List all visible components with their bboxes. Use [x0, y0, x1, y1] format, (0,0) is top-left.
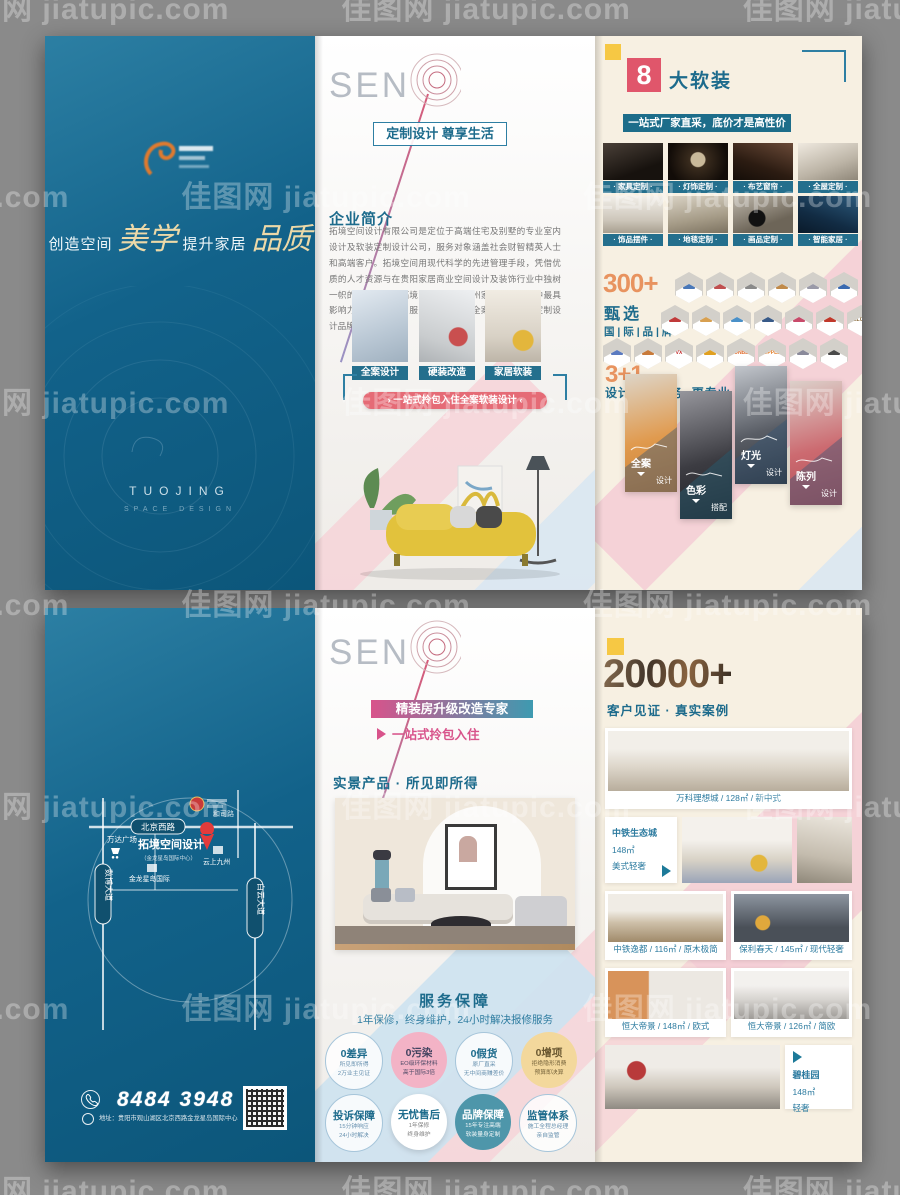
renovation-panel: SEN 精装房升级改造专家 一站式拎包入住 实景产品 · 所见即所得: [315, 608, 595, 1162]
case-caption: 恒大帝景 / 126㎡ / 简欧: [734, 1019, 849, 1034]
cases-count: 20000+: [603, 652, 732, 697]
brand-logo: [830, 272, 858, 303]
case-row: 恒大帝景 / 148㎡ / 欧式 恒大帝景 / 126㎡ / 简欧: [605, 968, 852, 1037]
grid-label: · 全屋定制 ·: [798, 181, 858, 193]
case-text-card: 中铁生态城 148㎡ 美式轻奢: [605, 817, 677, 883]
case-photo: [682, 817, 792, 883]
guarantee-badge: 0差异所见即所得2万业主见证: [325, 1032, 383, 1090]
watermark-text: 佳图网 jiatupic.com 佳图网 jiatupic.com 佳图网 ji…: [0, 1166, 900, 1195]
service-photo: [419, 290, 475, 362]
brand-hex-row: [675, 272, 858, 303]
road-north-label: 北京西路: [141, 822, 176, 832]
brand-en-sub: SPACE DESIGN: [45, 506, 315, 513]
onestop-banner: › 一站式拎包入住全案软装设计 ‹: [363, 392, 547, 409]
designer-role: 色彩: [686, 482, 706, 497]
road-west-label: 数博大道: [104, 869, 114, 901]
service-item: 硬装改造: [419, 290, 475, 380]
brand-logo: [661, 305, 689, 336]
guarantee-badge: 0污染EO级环保材料高于国际3倍: [391, 1032, 447, 1088]
corner-bracket: [802, 50, 846, 82]
intro-panel: SEN 定制设计 尊享生活 企业简介 拓境空间设计有限公司是定位于高端住宅及别墅…: [315, 36, 595, 590]
service-item: 家居软装: [485, 290, 541, 380]
brand-logo: [820, 338, 848, 369]
sen-logo: SEN: [329, 66, 410, 106]
phone-number: 8484 3948: [117, 1088, 234, 1112]
map-pin-label: 拓境空间设计: [138, 837, 204, 851]
play-icon: [377, 728, 386, 740]
case-photo: [734, 971, 849, 1019]
onestop-row: 一站式拎包入住: [377, 724, 480, 743]
sen-rings-icon: [397, 617, 461, 681]
guarantee-badge: 品牌保障15年专注高端软装量身定制: [455, 1094, 511, 1150]
grid-label: · 智能家居 ·: [798, 234, 858, 246]
designer-card: 陈列 设计: [790, 381, 842, 505]
service-photo: [485, 290, 541, 362]
company-logo: [137, 136, 227, 188]
softgoods-panel: 8 大软装 一站式厂家直采，底价才是高性价 · 家具定制 · · 灯饰定制 · …: [595, 36, 862, 590]
service-item: 全案设计: [352, 290, 408, 380]
brand-logo: [768, 272, 796, 303]
case-row: 中铁生态城 148㎡ 美式轻奢: [605, 817, 852, 883]
qr-code: [243, 1086, 287, 1130]
badge-row: 投诉保障15分钟响应24小时解决 无忧售后1年保修终身维护 品牌保障15年专注高…: [325, 1094, 577, 1152]
brochure-back: 北京西路 数博大道 白云大道 和司路 万达广场 拓境空间设计 （金龙星岛国际中心…: [45, 608, 862, 1162]
spiral-decoration: [45, 286, 315, 590]
mall-icon: [111, 848, 120, 859]
yellow-square: [605, 44, 621, 60]
connector-right: [553, 374, 567, 400]
case-row: 中铁逸都 / 116㎡ / 原木极简 保利春天 / 145㎡ / 现代轻奢: [605, 891, 852, 960]
grid-photo: [668, 143, 728, 180]
designer-card: 灯光 设计: [735, 366, 787, 484]
guarantee-badge: 0假货原厂直采无中间商赚差价: [455, 1032, 513, 1090]
brand-logo: [816, 305, 844, 336]
sen-rings-icon: [397, 50, 461, 114]
real-scene-heading: 实景产品 · 所见即所得: [333, 772, 479, 792]
grid-photo: [603, 143, 663, 180]
grid-label: · 灯饰定制 ·: [668, 181, 728, 193]
tagline-part: 提升家居: [183, 233, 247, 254]
brand-name: DONBLE: [728, 350, 754, 356]
case-card: 恒大帝景 / 148㎡ / 欧式: [605, 968, 726, 1037]
stock-preview-canvas: 创造空间 美学 提升家居 品质 TUOJING SPACE DESIGN SEN: [0, 0, 900, 1195]
grid-label: · 地毯定制 ·: [668, 234, 728, 246]
brand-logo: [754, 305, 782, 336]
case-area: 148㎡: [793, 1084, 852, 1100]
brochure-front: 创造空间 美学 提升家居 品质 TUOJING SPACE DESIGN SEN: [45, 36, 862, 590]
designer-role-sub: 设计: [821, 488, 837, 499]
case-row: 碧桂园 148㎡ 轻奢: [605, 1045, 852, 1109]
softgoods-banner: 一站式厂家直采，底价才是高性价: [623, 114, 791, 132]
onestop-text: 一站式拎包入住: [392, 724, 480, 743]
case-photo: [608, 731, 849, 791]
brand-logo: SELORIS: [847, 305, 862, 336]
designer-role-sub: 搭配: [711, 502, 727, 513]
case-photo: [797, 817, 852, 883]
phone-icon: [81, 1090, 100, 1109]
case-caption: 万科理想城 / 128㎡ / 新中式: [608, 791, 849, 806]
designer-role-sub: 设计: [656, 475, 672, 486]
location-map: 北京西路 数博大道 白云大道 和司路 万达广场 拓境空间设计 （金龙星岛国际中心…: [45, 768, 315, 1058]
tagline-part: 创造空间: [48, 233, 112, 254]
designer-card: 色彩 搭配: [680, 391, 732, 519]
case-card: 万科理想城 / 128㎡ / 新中式: [605, 728, 852, 809]
case-photo: [608, 971, 723, 1019]
cases-panel: 20000+ 客户见证 · 真实案例 万科理想城 / 128㎡ / 新中式 中铁…: [595, 608, 862, 1162]
brand-logo: [692, 305, 720, 336]
cover-tagline: 创造空间 美学 提升家居 品质: [45, 226, 315, 254]
service-label: 全案设计: [352, 366, 408, 380]
case-photo: [608, 894, 723, 942]
grid-photo: [668, 196, 728, 233]
case-photo: [605, 1045, 780, 1109]
map-pin-sub: （金龙星岛国际中心）: [141, 854, 196, 862]
brand-logo: [706, 272, 734, 303]
service-guarantee-subtitle: 1年保修，终身维护，24小时解决报修服务: [315, 1012, 595, 1027]
case-photo: [734, 894, 849, 942]
brand-logo: [675, 272, 703, 303]
case-card: 保利春天 / 145㎡ / 现代轻奢: [731, 891, 852, 960]
grid-photo: [798, 196, 858, 233]
tagline-script: 品质: [252, 226, 312, 253]
case-name: 碧桂园: [793, 1067, 852, 1084]
contact-panel: 北京西路 数博大道 白云大道 和司路 万达广场 拓境空间设计 （金龙星岛国际中心…: [45, 608, 315, 1162]
road-ne-label: 和司路: [213, 809, 234, 818]
address-text: 地址：贵阳市观山湖区北京西路金龙星岛国际中心: [99, 1113, 244, 1122]
expert-banner: 精装房升级改造专家: [371, 700, 533, 718]
grid-photo: [798, 143, 858, 180]
badge-row: 0差异所见即所得2万业主见证 0污染EO级环保材料高于国际3倍 0假货原厂直采无…: [325, 1032, 577, 1090]
number-8-label: 大软装: [669, 66, 732, 93]
case-caption: 中铁逸都 / 116㎡ / 原木极简: [608, 942, 723, 957]
service-guarantee-title: 服务保障: [315, 990, 595, 1011]
case-caption: 保利春天 / 145㎡ / 现代轻奢: [734, 942, 849, 957]
guarantee-badge: 监管体系施工全程总经理亲自监管: [519, 1094, 577, 1152]
brands-title: 甄选: [604, 300, 642, 324]
grid-label: · 饰品摆件 ·: [603, 234, 663, 246]
designer-role: 全案: [631, 455, 651, 470]
cover-panel: 创造空间 美学 提升家居 品质 TUOJING SPACE DESIGN: [45, 36, 315, 590]
case-card: 中铁逸都 / 116㎡ / 原木极简: [605, 891, 726, 960]
sofa-illustration: [330, 448, 580, 586]
brand-logo: [737, 272, 765, 303]
guarantee-badge: 0增项拒绝隐形消费预算即决算: [521, 1032, 577, 1088]
brand-en: TUOJING: [45, 484, 315, 498]
signature: [739, 432, 779, 446]
service-label: 家居软装: [485, 366, 541, 380]
road-east-label: 白云大道: [256, 883, 266, 915]
play-icon: [662, 865, 671, 877]
service-label: 硬装改造: [419, 366, 475, 380]
case-list: 万科理想城 / 128㎡ / 新中式 中铁生态城 148㎡ 美式轻奢: [605, 728, 852, 1109]
brand-name: SELORIS: [848, 317, 862, 323]
brand-logo: VX: [665, 338, 693, 369]
brand-logo: [696, 338, 724, 369]
brand-logo: OPPLE: [758, 338, 786, 369]
cases-subtitle: 客户见证 · 真实案例: [607, 700, 729, 719]
case-name: 中铁生态城: [612, 825, 677, 842]
watermark-text: 佳图网 jiatupic.com 佳图网 jiatupic.com 佳图网 ji…: [0, 0, 900, 28]
grid-photo: [733, 143, 793, 180]
tagline-script: 美学: [118, 226, 178, 253]
brand-logo: [799, 272, 827, 303]
poi-label: 万达广场: [107, 834, 137, 844]
number-8: 8: [627, 58, 661, 92]
brand-logo: DONBLE: [727, 338, 755, 369]
signature: [629, 440, 669, 454]
poi-label: 金龙星岛国际: [129, 874, 170, 883]
showroom-photo: [335, 798, 575, 950]
poi-label: 云上九州: [203, 857, 230, 866]
designer-card: 全案 设计: [625, 374, 677, 492]
brand-logo: [785, 305, 813, 336]
service-photo: [352, 290, 408, 362]
brand-logo: [789, 338, 817, 369]
case-style: 轻奢: [793, 1100, 852, 1116]
brand-logo: [723, 305, 751, 336]
designer-role: 灯光: [741, 447, 761, 462]
designer-role: 陈列: [796, 468, 816, 483]
case-caption: 恒大帝景 / 148㎡ / 欧式: [608, 1019, 723, 1034]
grid-label: · 画品定制 ·: [733, 234, 793, 246]
designer-role-sub: 设计: [766, 467, 782, 478]
signature: [684, 467, 724, 481]
grid-photo: [603, 196, 663, 233]
grid-photo: [733, 196, 793, 233]
play-icon: [793, 1051, 802, 1063]
signature: [794, 453, 834, 467]
guarantee-badge: 无忧售后1年保修终身维护: [391, 1094, 447, 1150]
case-area: 148㎡: [612, 842, 677, 858]
brand-name: OPPLE: [759, 350, 785, 356]
grid-label: · 布艺窗帘 ·: [733, 181, 793, 193]
location-icon: [82, 1113, 94, 1125]
case-text-card: 碧桂园 148㎡ 轻奢: [785, 1045, 852, 1109]
sen-logo: SEN: [329, 633, 410, 673]
slogan-box: 定制设计 尊享生活: [373, 122, 507, 146]
connector-left: [343, 374, 357, 400]
brands-count: 300+: [603, 268, 658, 299]
brand-hex-row: SELORIS: [661, 305, 862, 336]
grid-label: · 家具定制 ·: [603, 181, 663, 193]
guarantee-badge: 投诉保障15分钟响应24小时解决: [325, 1094, 383, 1152]
brand-name: VX: [666, 350, 692, 356]
case-card: 恒大帝景 / 126㎡ / 简欧: [731, 968, 852, 1037]
